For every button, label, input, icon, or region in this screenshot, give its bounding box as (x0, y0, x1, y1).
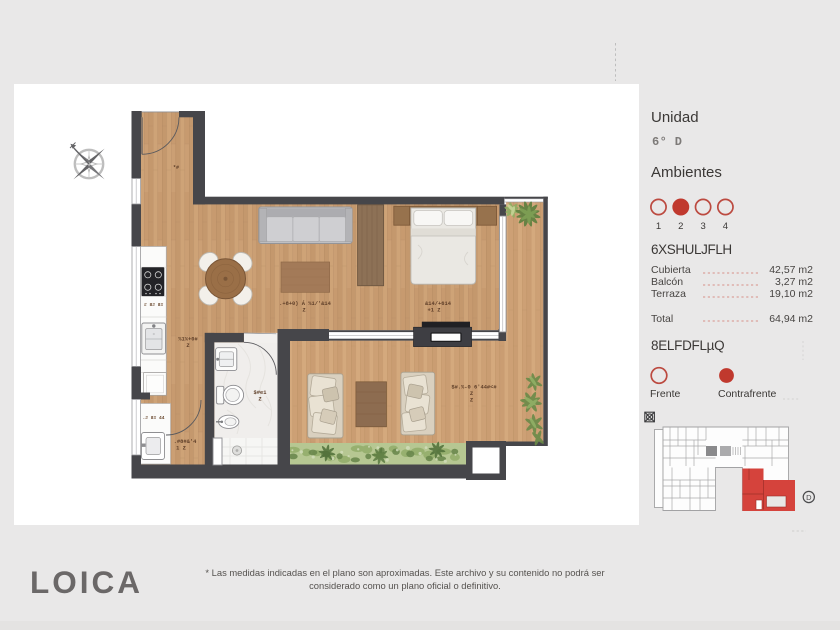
svg-text:+1 Z: +1 Z (428, 308, 441, 314)
svg-text:2: 2 (678, 221, 683, 232)
svg-text:1: 1 (656, 221, 661, 232)
svg-text:1 Z: 1 Z (176, 446, 186, 452)
svg-text:.#8#&'4: .#8#&'4 (174, 439, 197, 445)
svg-text:Z: Z (302, 308, 305, 314)
svg-text:$#.%-0 6'44#<#: $#.%-0 6'44#<# (451, 385, 497, 391)
svg-text:4: 4 (723, 221, 728, 232)
svg-text:Z: Z (470, 391, 473, 397)
svg-text:.+8+0) Á %1/'&14: .+8+0) Á %1/'&14 (279, 300, 332, 307)
svg-text:Z: Z (186, 343, 189, 349)
svg-text:Z: Z (470, 398, 473, 404)
svg-text:.# 8# 44: .# 8# 44 (143, 415, 165, 421)
svg-text:# 8# 8#: # 8# 8# (144, 302, 164, 308)
svg-text:&14/+614: &14/+614 (425, 301, 452, 307)
svg-text:3: 3 (700, 221, 705, 232)
svg-text:*#: *# (173, 165, 179, 171)
svg-text:Z: Z (258, 397, 261, 403)
svg-text:LOICA: LOICA (30, 567, 143, 600)
svg-text:D: D (806, 493, 812, 502)
svg-text:%1%+0#: %1%+0# (178, 337, 198, 343)
svg-text:$#e1: $#e1 (254, 390, 267, 396)
